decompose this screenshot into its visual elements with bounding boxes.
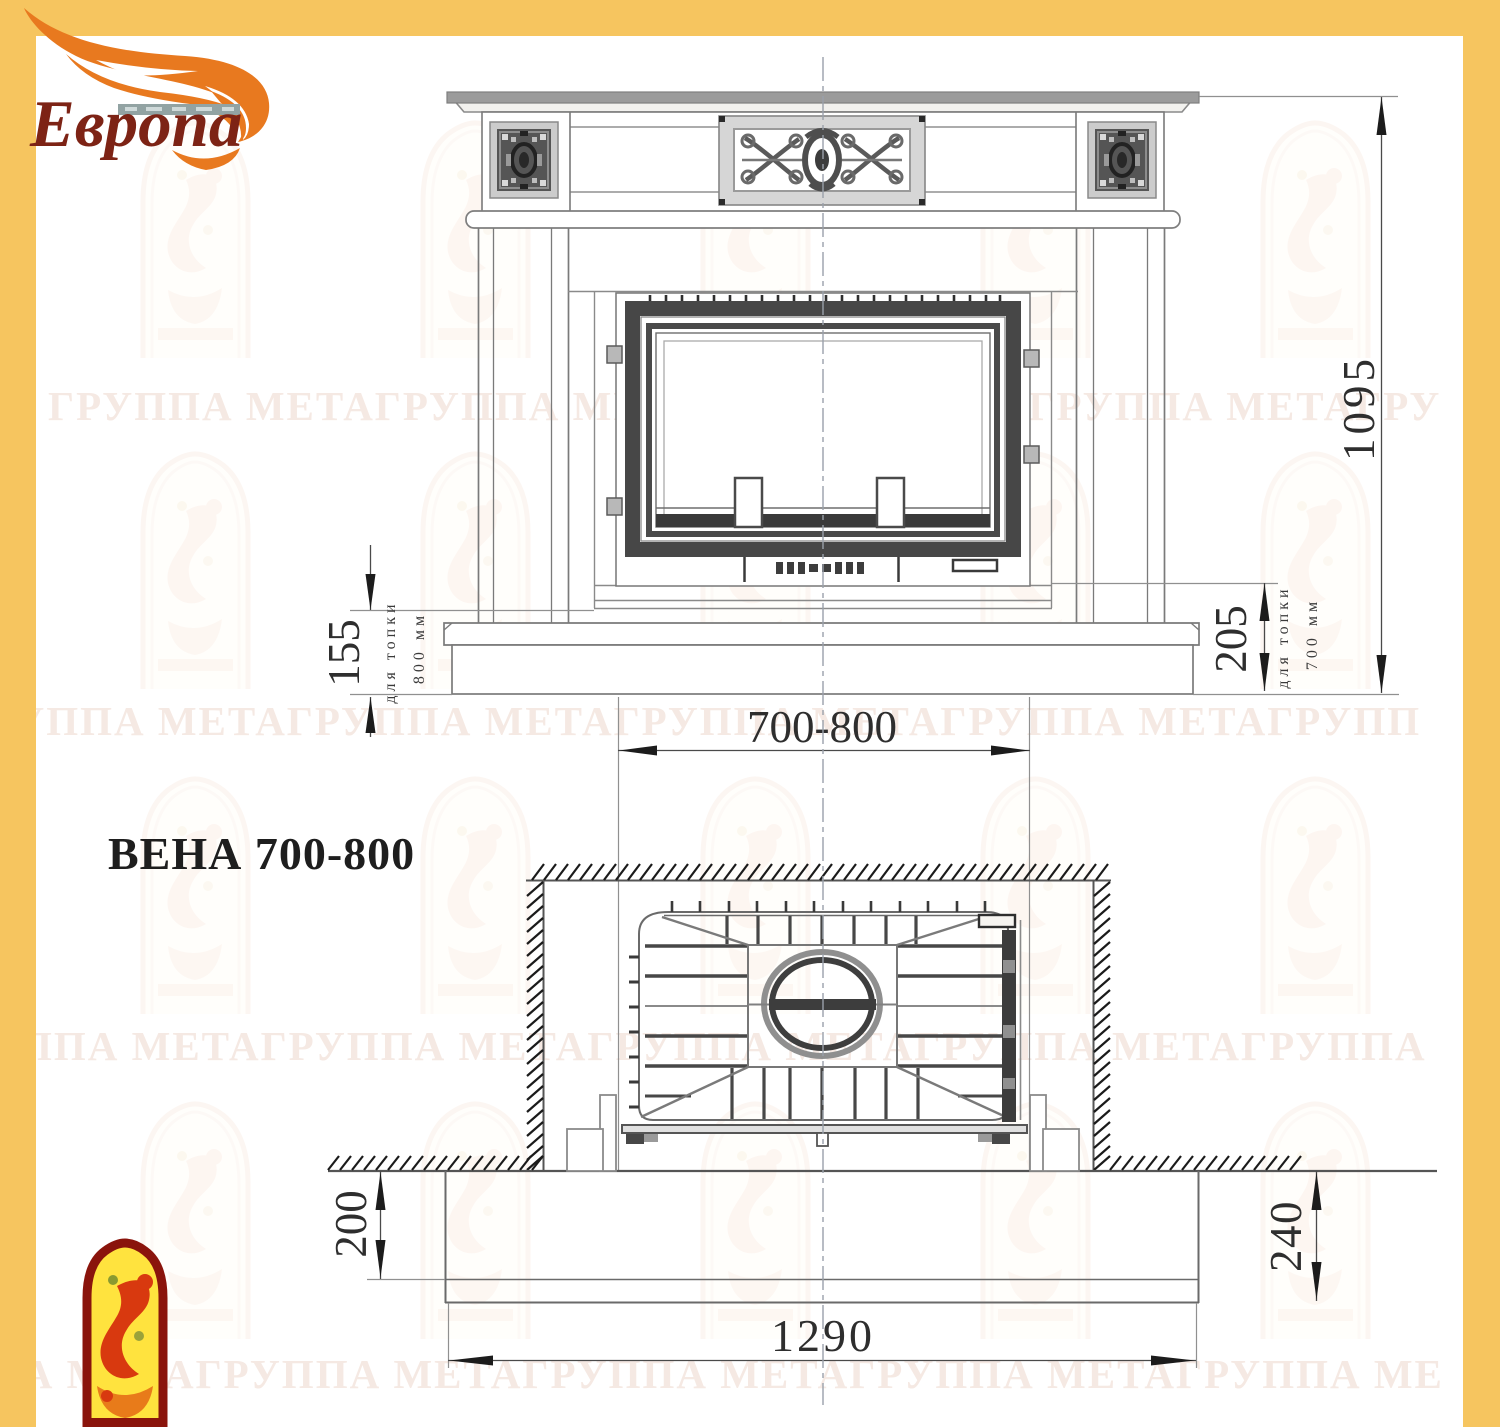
svg-text:для топки: для топки <box>1275 585 1292 688</box>
svg-text:ВЕНА 700-800: ВЕНА 700-800 <box>108 828 415 879</box>
svg-text:240: 240 <box>1261 1200 1311 1272</box>
svg-text:200: 200 <box>326 1190 376 1258</box>
svg-text:для топки: для топки <box>382 600 399 703</box>
svg-text:700-800: 700-800 <box>747 702 897 752</box>
svg-text:1095: 1095 <box>1334 355 1384 461</box>
svg-text:205: 205 <box>1206 605 1256 673</box>
svg-text:700 мм: 700 мм <box>1304 598 1321 670</box>
svg-text:155: 155 <box>319 619 369 687</box>
svg-text:800 мм: 800 мм <box>411 612 428 684</box>
